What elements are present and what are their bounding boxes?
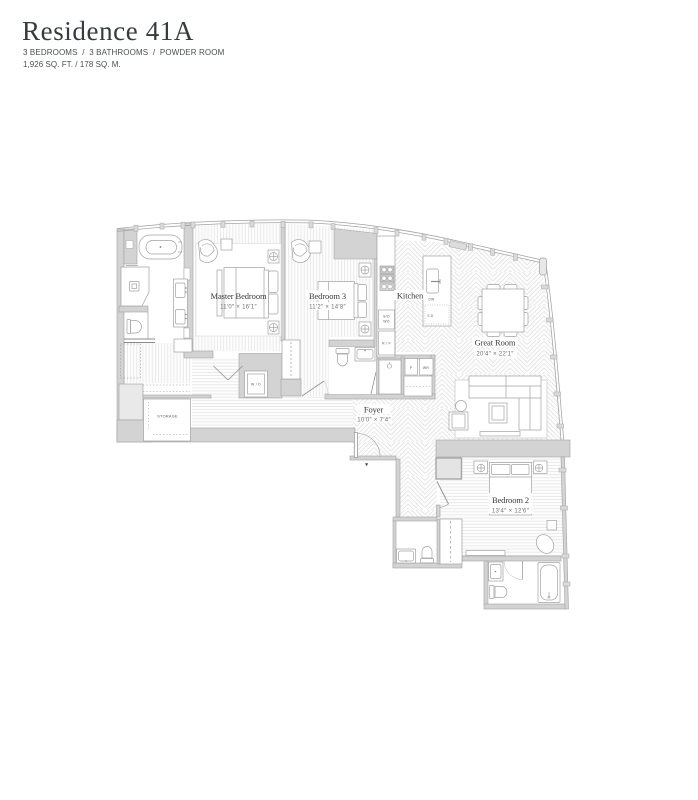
svg-text:Kitchen: Kitchen [397, 291, 424, 301]
svg-text:WR: WR [423, 366, 430, 370]
svg-text:13′4″ × 12′6″: 13′4″ × 12′6″ [492, 509, 530, 515]
svg-text:11′2″ × 14′8″: 11′2″ × 14′8″ [309, 305, 346, 311]
svg-text:S/O: S/O [383, 315, 390, 319]
svg-text:DW: DW [429, 298, 435, 302]
svg-text:11′0″ × 16′1″: 11′0″ × 16′1″ [220, 305, 257, 311]
svg-text:S.D: S.D [427, 314, 434, 318]
svg-text:P: P [410, 366, 413, 370]
svg-text:R / F: R / F [382, 342, 391, 346]
svg-text:Foyer: Foyer [364, 405, 384, 415]
svg-text:20′4″ × 22′1″: 20′4″ × 22′1″ [476, 352, 514, 358]
svg-text:10′0″ × 7′4″: 10′0″ × 7′4″ [357, 418, 391, 424]
svg-text:Great Room: Great Room [475, 338, 516, 348]
svg-text:WO: WO [383, 320, 390, 324]
svg-text:W / D: W / D [251, 383, 261, 387]
svg-text:Bedroom 3: Bedroom 3 [309, 291, 346, 301]
svg-text:Bedroom 2: Bedroom 2 [492, 495, 529, 505]
svg-text:STORAGE: STORAGE [157, 415, 178, 419]
svg-text:Master Bedroom: Master Bedroom [211, 291, 267, 301]
